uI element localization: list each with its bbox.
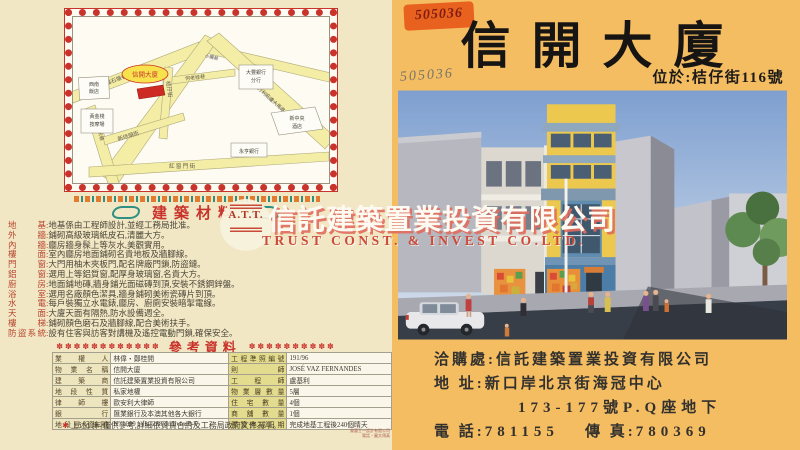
neighbor-building-left (398, 132, 481, 293)
scroll-ornament-left-icon (112, 206, 140, 219)
neighbor-building-tall (616, 136, 675, 299)
disclaimer-footnote: ✱ 上述資料僅供參考,詳細依買賣合約及工務局政府文件為準。 (62, 420, 281, 431)
mid-building (481, 147, 548, 298)
ref-value: 191/96 (287, 353, 392, 364)
ref-value: 1個 (287, 408, 392, 419)
handwritten-code: 505036 (400, 66, 455, 86)
material-text: 地基係由工程師設計,並經工務局批准。 (48, 220, 195, 230)
table-row: 業權人 林偉・鄭桂開 工程準照編號 191/96 (53, 353, 392, 364)
landmark-label: 按摩場 (89, 121, 104, 128)
ref-label: 業權人 (53, 353, 111, 364)
material-text: 地面鋪地磚,牆身鋪光面磁磚到頂,安裝不銹鋼鋅盤。 (48, 279, 239, 289)
landmark-label: 分行 (251, 77, 261, 84)
material-text: 選用上等鋁質窗,配厚身玻璃窗,名貴大方。 (48, 269, 205, 279)
reference-table: 業權人 林偉・鄭桂開 工程準照編號 191/96 物業名稱 信開大廈 則師 JO… (52, 352, 392, 430)
disclaimer-text: 上述資料僅供參考,詳細依買賣合約及工務局政府文件為準。 (71, 421, 281, 430)
pedestrian (588, 292, 594, 313)
contact-label: 傳 真: (585, 424, 636, 440)
ref-value: 5層 (287, 386, 392, 397)
table-row: 物業名稱 信開大廈 則師 JOSÉ VAZ FERNANDES (53, 364, 392, 375)
architectural-rendering (398, 88, 787, 342)
table-row: 律師樓 歐安利大律師 住宅數量 4個 (53, 397, 392, 408)
landmark-label: 黃金棧 (89, 113, 104, 120)
landmark-label: 新中央 (289, 115, 304, 122)
material-text: 廳房牆身髹上等灰水,美觀實用。 (48, 240, 169, 250)
ref-value: 歐安利大律師 (111, 397, 229, 408)
contact-line: 173-177號P.Q座地下 (518, 396, 794, 420)
contact-value: 新口岸北京街海冠中心 (485, 376, 665, 392)
scanned-brochure-page: 爐石塘巷 天通街 小纜巷 新埗頭街 亞美打利庇盧大馬路 何老桂巷 桔仔街 蓬萊新… (0, 0, 800, 450)
subject-building (541, 104, 619, 301)
building-rendering (398, 88, 787, 342)
ref-value: 信開大廈 (111, 364, 229, 375)
landmark-label: 酒店 (292, 123, 302, 130)
ref-value: 私家地權 (111, 386, 229, 397)
material-text: 鋪砌高級玻璃紙皮石,清麗大方。 (48, 230, 169, 240)
pedestrian (665, 299, 669, 312)
printer-credit-line: 電話・圖文傳真 (350, 433, 390, 438)
site-callout-label: 信開大廈 (132, 70, 159, 79)
contact-value: 173-177號P.Q座地下 (518, 400, 721, 416)
ref-label: 物業層數量 (229, 386, 287, 397)
pedestrian (520, 298, 526, 316)
material-text: 大門用柚木夾板門,配名牌廠門鎖,防盜鏈。 (48, 259, 205, 269)
ref-label: 工程準照編號 (229, 353, 287, 364)
scroll-ornament-right-icon (252, 206, 280, 219)
asterisk-icon: ✱ (62, 421, 69, 430)
ref-label: 則師 (229, 364, 287, 375)
ref-value: 盧基利 (287, 375, 392, 386)
printer-credit: 美藝王一設計有限公司 電話・圖文傳真 (350, 428, 390, 438)
contact-line: 洽購處:信託建築置業投資有限公司 (434, 348, 794, 372)
ref-value: JOSÉ VAZ FERNANDES (287, 364, 392, 375)
right-panel: 505036 信開大廈 505036 位於:桔仔街116號 (392, 0, 800, 450)
table-row: 銀行 匯業銀行及本澳其他各大銀行 商舖數量 1個 (53, 408, 392, 419)
material-text: 每戶裝獨立水電錶,廳房、廚廁安裝暗掣電線。 (48, 298, 220, 308)
shop-sign (584, 267, 604, 273)
ref-label: 銀行 (53, 408, 111, 419)
map-ornamental-border: 爐石塘巷 天通街 小纜巷 新埗頭街 亞美打利庇盧大馬路 何老桂巷 桔仔街 蓬萊新… (65, 9, 337, 191)
ref-label: 建築商 (53, 375, 111, 386)
ref-label: 地段性質 (53, 386, 111, 397)
ref-label: 住宅數量 (229, 397, 287, 408)
star-row-left: ✽✽✽✽✽✽✽✽✽✽✽✽ (56, 342, 160, 351)
material-text: 鋪砌顏色磨石及牆腳線,配合美術扶手。 (48, 318, 195, 328)
fax-number: 780369 (636, 424, 711, 440)
pedestrian (505, 324, 509, 337)
street-label: 紅 窗 門 街 (169, 162, 196, 170)
landmark-label: 永亨銀行 (239, 148, 259, 155)
location-map: 爐石塘巷 天通街 小纜巷 新埗頭街 亞美打利庇盧大馬路 何老桂巷 桔仔街 蓬萊新… (72, 16, 330, 184)
contact-line: 地 址:新口岸北京街海冠中心 (434, 372, 794, 396)
map-streets (72, 33, 330, 184)
location-map-frame: 爐石塘巷 天通街 小纜巷 新埗頭街 亞美打利庇盧大馬路 何老桂巷 桔仔街 蓬萊新… (64, 8, 338, 192)
ref-label: 物業名稱 (53, 364, 111, 375)
location-line: 位於:桔仔街116號 (652, 66, 784, 87)
contact-value: 信託建築置業投資有限公司 (496, 352, 712, 368)
materials-list: 地基:地基係由工程師設計,並經工務局批准。 外牆:鋪砌高級玻璃紙皮石,清麗大方。… (8, 221, 390, 339)
table-row: 建築商 信託建築置業投資有限公司 工程師 盧基利 (53, 375, 392, 386)
pedestrian (605, 292, 611, 312)
ref-value: 林偉・鄭桂開 (111, 353, 229, 364)
ref-label: 商舖數量 (229, 408, 287, 419)
pedestrian (643, 291, 649, 311)
ref-label: 工程師 (229, 375, 287, 386)
contact-label: 地 址: (434, 376, 485, 392)
material-text: 室內廳房地面鋪砌名貴地板及牆腳線。 (48, 249, 193, 259)
landmark-label: 大豐銀行 (246, 69, 266, 76)
left-panel: 爐石塘巷 天通街 小纜巷 新埗頭街 亞美打利庇盧大馬路 何老桂巷 桔仔街 蓬萊新… (0, 0, 392, 450)
ref-value: 4個 (287, 397, 392, 408)
ref-label: 律師樓 (53, 397, 111, 408)
material-text: 選用名廠顏色潔具,牆身鋪砌美術瓷磚片到頂。 (48, 289, 220, 299)
landmark-label: 西南 (89, 81, 99, 88)
ref-value: 信託建築置業投資有限公司 (111, 375, 229, 386)
pedestrian (706, 294, 712, 313)
table-row: 地段性質 私家地權 物業層數量 5層 (53, 386, 392, 397)
ref-value: 匯業銀行及本澳其他各大銀行 (111, 408, 229, 419)
contact-label: 電 話: (434, 424, 485, 440)
pedestrian (653, 290, 659, 311)
phone-number: 781155 (485, 424, 559, 440)
landmark-label: 飯店 (89, 88, 99, 95)
contact-line: 電 話:781155傳 真:780369 (434, 420, 794, 444)
contact-block: 洽購處:信託建築置業投資有限公司 地 址:新口岸北京街海冠中心 173-177號… (434, 348, 794, 444)
contact-label: 洽購處: (434, 352, 496, 368)
material-text: 大廈天面有隔熱,防水設備週全。 (48, 308, 169, 318)
star-row-right: ✽✽✽✽✽✽✽✽✽✽ (249, 342, 336, 351)
